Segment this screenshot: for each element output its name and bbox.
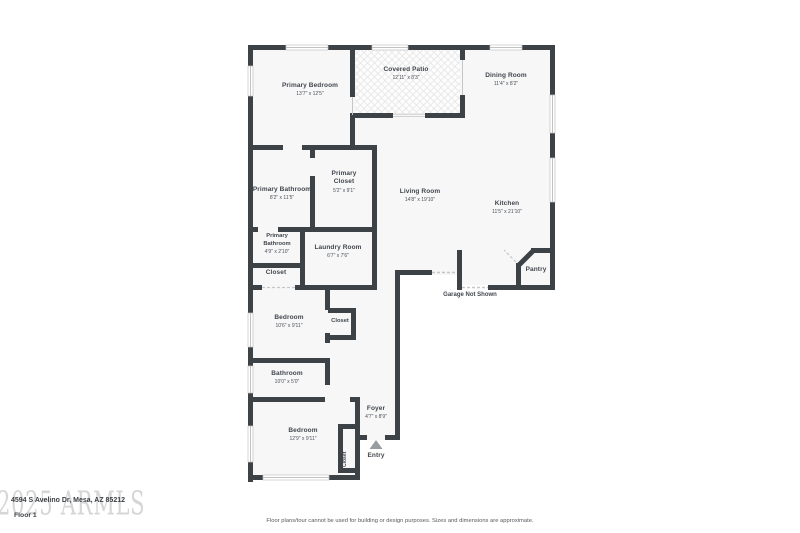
room-label-bathroom: Bathroom 10'0" x 5'0" — [252, 370, 322, 386]
property-address: 4594 S Avelino Dr, Mesa, AZ 85212 — [11, 497, 125, 504]
room-label-living-room: Living Room 14'8" x 19'10" — [370, 188, 470, 204]
room-label-foyer: Foyer 4'7" x 8'9" — [355, 405, 397, 421]
room-label-primary-bathroom-2: Primary Bathroom 4'9" x 2'10" — [260, 233, 294, 256]
room-label-primary-closet: Primary Closet 5'2" x 9'1" — [326, 170, 362, 194]
room-label-primary-bedroom: Primary Bedroom 13'7" x 12'5" — [250, 82, 370, 98]
room-label-covered-patio: Covered Patio 12'11" x 8'3" — [356, 66, 456, 82]
garage-note: Garage Not Shown — [420, 292, 520, 300]
room-label-primary-bathroom: Primary Bathroom 8'2" x 11'5" — [252, 186, 312, 202]
room-label-pantry: Pantry — [518, 266, 554, 274]
room-label-bedroom-1-closet: Closet — [326, 318, 354, 326]
entry-label: Entry — [356, 452, 396, 460]
floorplan-page: Primary Bedroom 13'7" x 12'5" Covered Pa… — [0, 0, 800, 533]
room-label-bedroom-2-closet: Closet — [342, 433, 348, 467]
room-label-hall-closet: Closet — [251, 269, 301, 277]
disclaimer-text: Floor plans/tour cannot be used for buil… — [0, 518, 800, 524]
room-label-bedroom-1: Bedroom 10'6" x 9'11" — [254, 314, 324, 330]
room-label-bedroom-2: Bedroom 12'9" x 9'11" — [258, 427, 348, 443]
room-label-laundry-room: Laundry Room 6'7" x 7'6" — [304, 244, 372, 260]
room-label-dining-room: Dining Room 11'4" x 8'2" — [456, 72, 556, 88]
room-label-kitchen: Kitchen 11'5" x 21'10" — [457, 200, 557, 216]
floor-fill-layer — [253, 50, 550, 475]
